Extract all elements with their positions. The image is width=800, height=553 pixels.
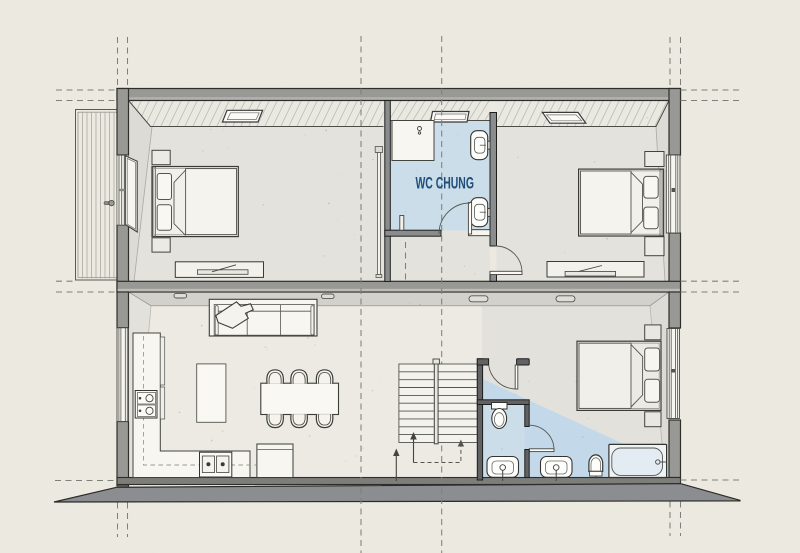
svg-text:WC CHUNG: WC CHUNG xyxy=(415,175,474,193)
